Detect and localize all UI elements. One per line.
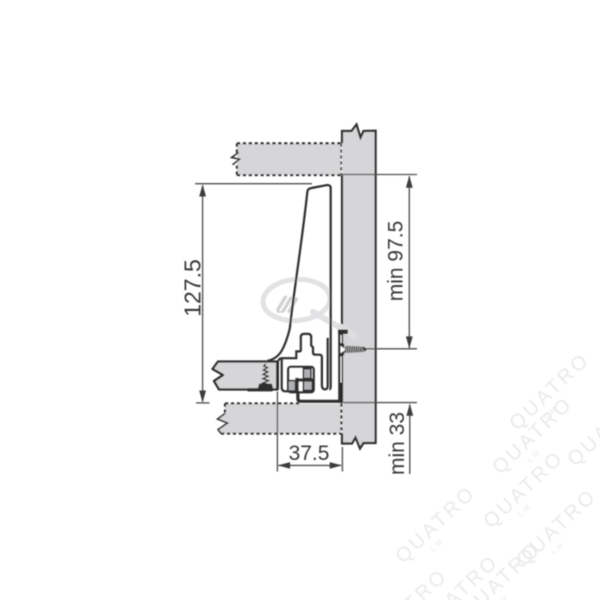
svg-text:min 97.5: min 97.5 [385,221,408,302]
svg-text:127.5: 127.5 [180,259,206,317]
svg-text:min 33: min 33 [386,412,409,475]
svg-text:37.5: 37.5 [289,442,330,465]
